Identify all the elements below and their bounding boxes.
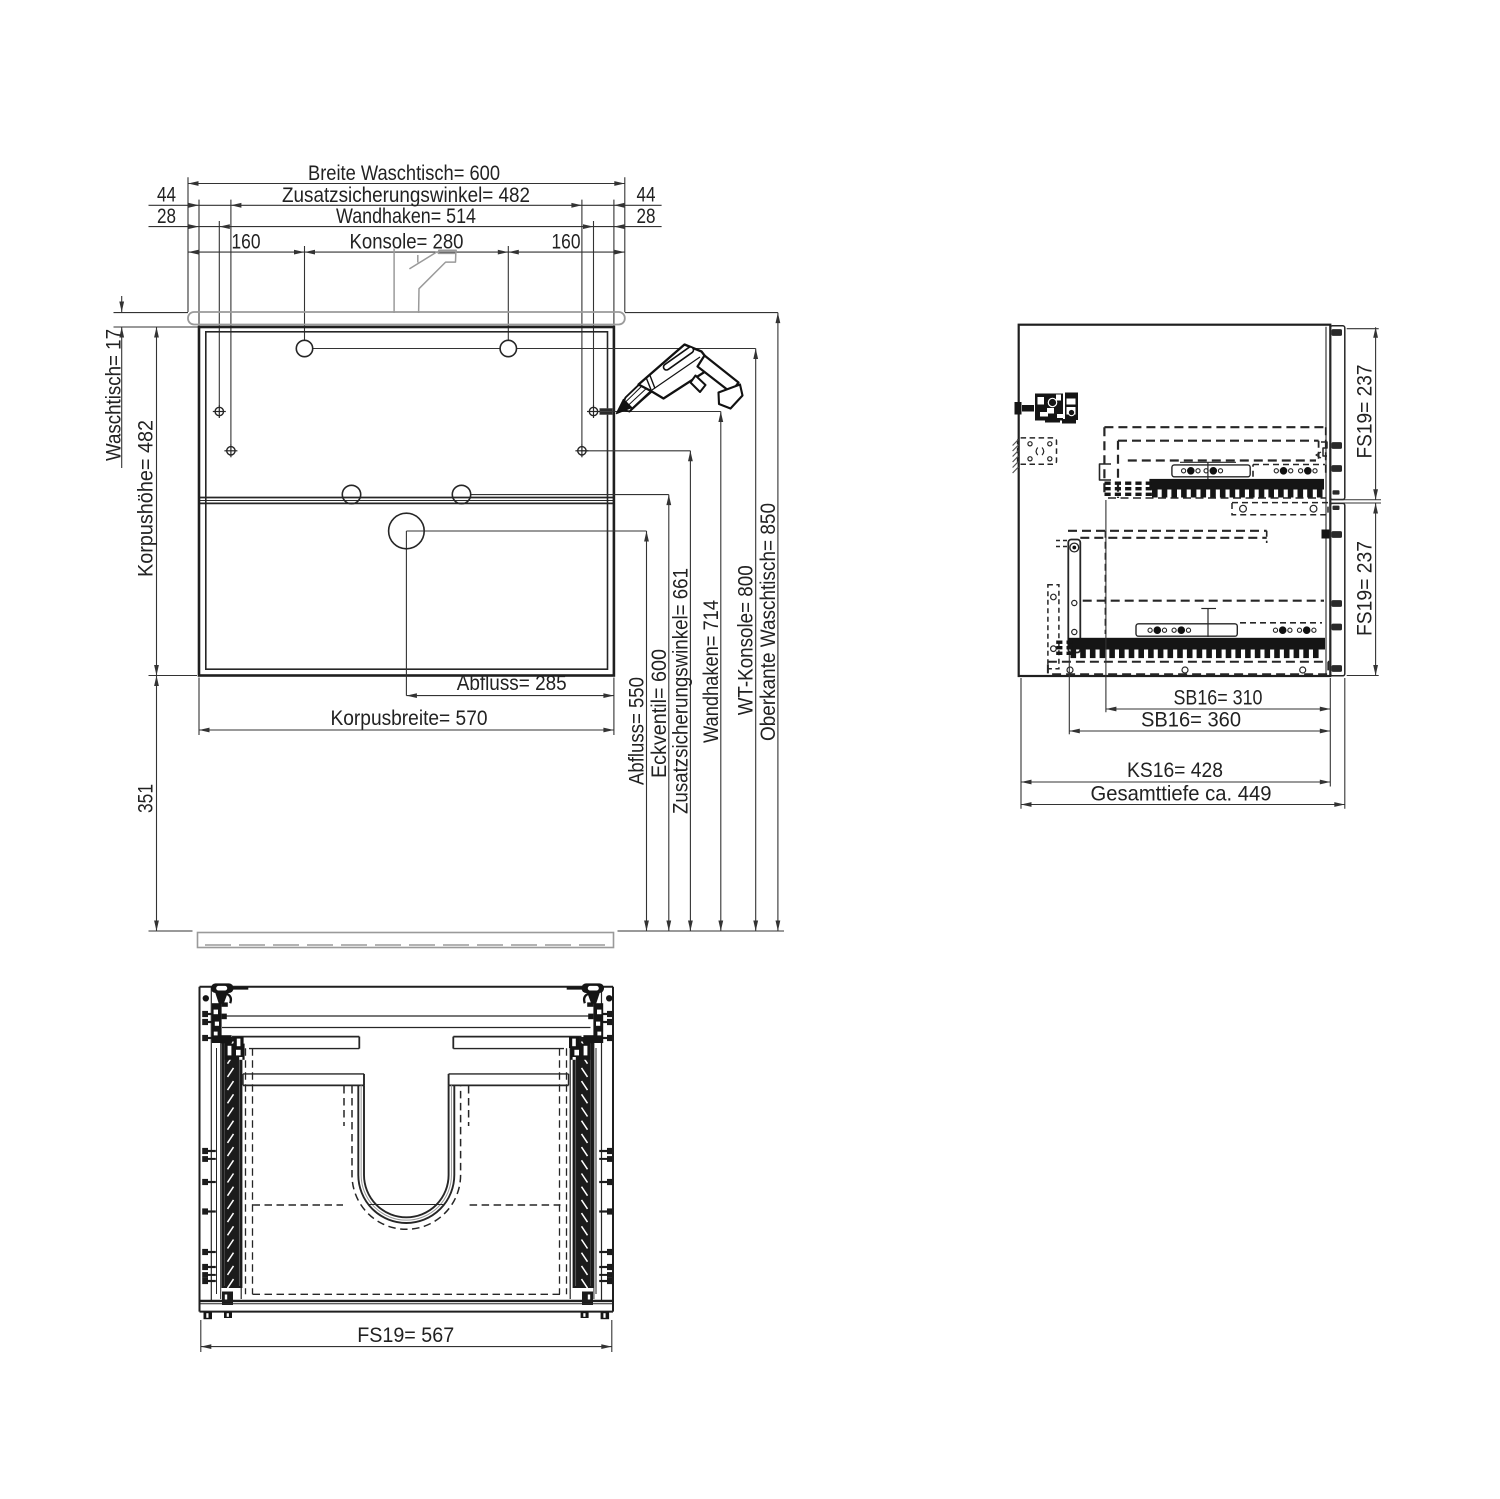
- svg-text:WT-Konsole= 800: WT-Konsole= 800: [735, 565, 758, 715]
- svg-text:Zusatzsicherungswinkel= 482: Zusatzsicherungswinkel= 482: [282, 184, 530, 207]
- svg-text:SB16= 310: SB16= 310: [1174, 687, 1263, 710]
- svg-text:Waschtisch= 17: Waschtisch= 17: [103, 329, 126, 461]
- svg-text:Wandhaken= 514: Wandhaken= 514: [336, 205, 476, 228]
- svg-text:44: 44: [637, 184, 656, 207]
- svg-text:28: 28: [157, 205, 176, 228]
- svg-text:FS19= 567: FS19= 567: [357, 1324, 454, 1347]
- svg-text:Gesamttiefe ca. 449: Gesamttiefe ca. 449: [1091, 783, 1272, 806]
- svg-text:Korpushöhe= 482: Korpushöhe= 482: [135, 420, 158, 577]
- svg-text:Eckventil= 600: Eckventil= 600: [648, 649, 671, 778]
- svg-text:Oberkante Waschtisch= 850: Oberkante Waschtisch= 850: [757, 503, 780, 741]
- svg-text:Zusatzsicherungswinkel= 661: Zusatzsicherungswinkel= 661: [669, 568, 692, 814]
- svg-text:351: 351: [135, 784, 158, 813]
- svg-text:Wandhaken= 714: Wandhaken= 714: [700, 600, 723, 743]
- svg-text:160: 160: [232, 231, 261, 254]
- svg-text:Abfluss= 550: Abfluss= 550: [626, 677, 649, 785]
- svg-text:Korpusbreite= 570: Korpusbreite= 570: [331, 707, 488, 730]
- svg-text:Breite Waschtisch= 600: Breite Waschtisch= 600: [308, 162, 500, 185]
- svg-text:FS19= 237: FS19= 237: [1354, 541, 1377, 636]
- svg-text:160: 160: [552, 231, 581, 254]
- svg-text:SB16= 360: SB16= 360: [1141, 709, 1241, 732]
- svg-text:44: 44: [157, 184, 176, 207]
- svg-text:Abfluss= 285: Abfluss= 285: [457, 672, 567, 695]
- svg-text:KS16= 428: KS16= 428: [1127, 759, 1223, 782]
- svg-text:FS19= 237: FS19= 237: [1354, 365, 1377, 459]
- svg-text:28: 28: [637, 205, 656, 228]
